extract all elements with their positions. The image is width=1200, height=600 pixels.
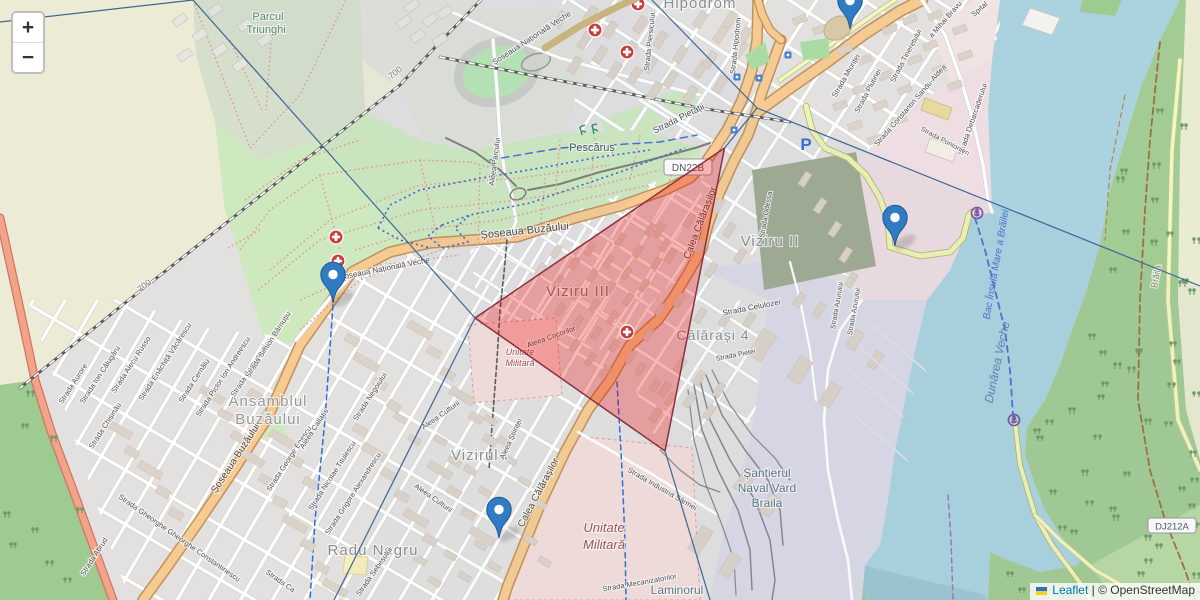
svg-text:Buzăului: Buzăului [235, 411, 301, 428]
svg-text:Hipodrom: Hipodrom [663, 0, 736, 12]
svg-text:Ansamblul: Ansamblul [228, 393, 307, 410]
svg-text:P: P [800, 135, 811, 154]
